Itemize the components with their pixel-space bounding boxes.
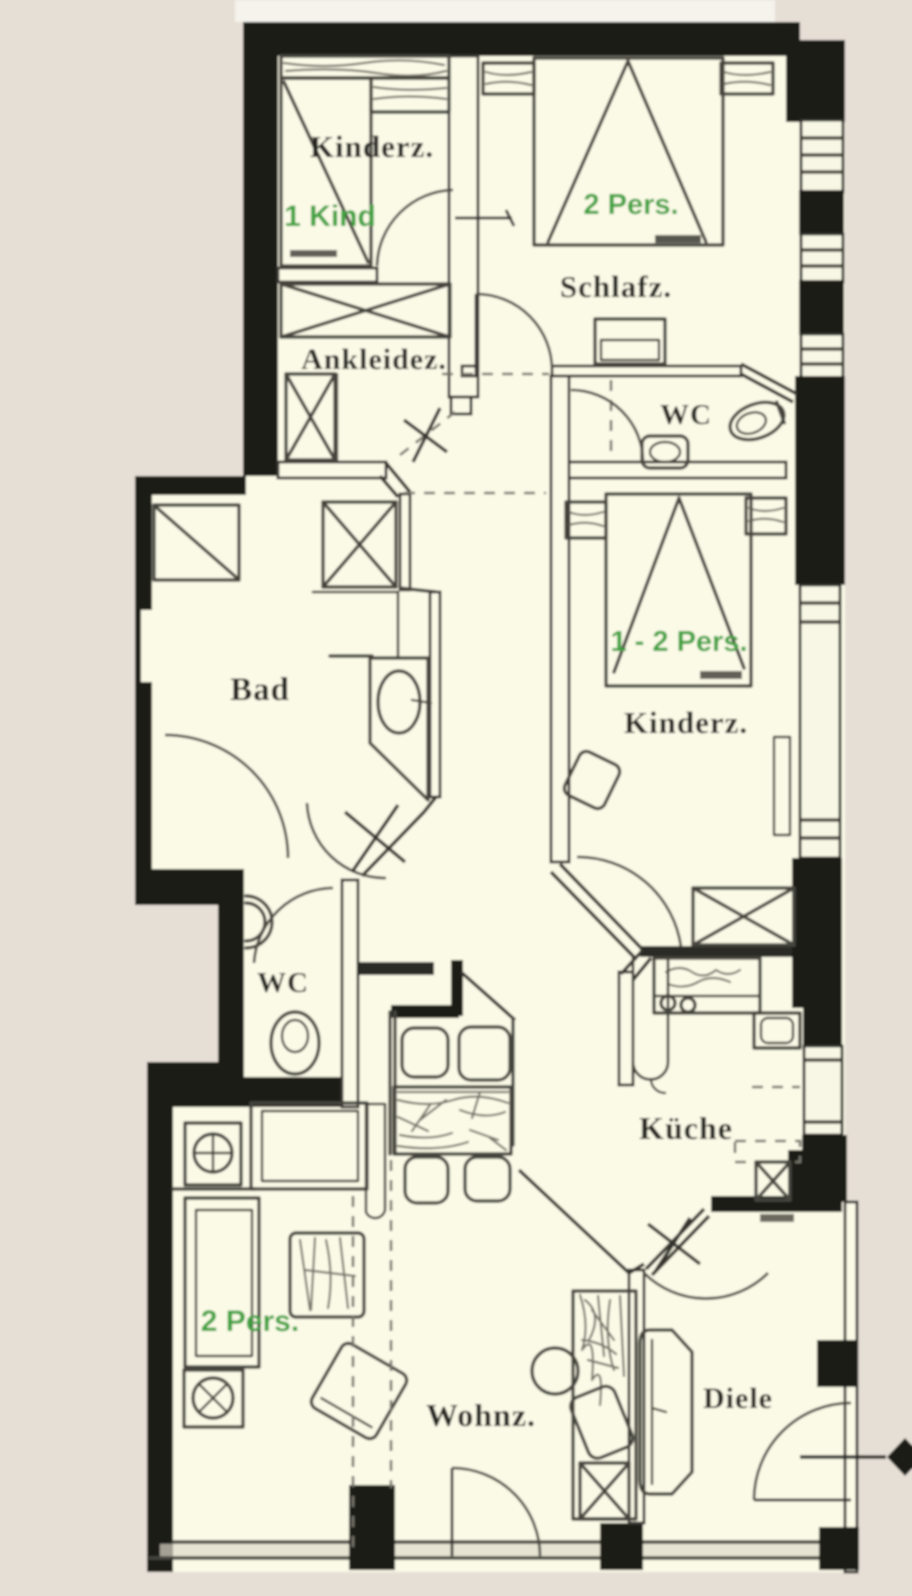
- svg-text:Diele: Diele: [703, 1382, 773, 1415]
- svg-text:Kinderz.: Kinderz.: [624, 705, 748, 740]
- svg-text:Ankleidez.: Ankleidez.: [301, 343, 447, 376]
- svg-text:WC: WC: [660, 399, 712, 431]
- svg-text:Schlafz.: Schlafz.: [560, 269, 672, 304]
- svg-text:WC: WC: [257, 967, 309, 999]
- svg-text:2 Pers.: 2 Pers.: [583, 189, 678, 221]
- svg-text:Wohnz.: Wohnz.: [426, 1397, 536, 1433]
- svg-text:Bad: Bad: [230, 672, 290, 708]
- svg-text:2 Pers.: 2 Pers.: [201, 1305, 299, 1338]
- svg-text:1 Kind: 1 Kind: [284, 200, 376, 233]
- svg-text:Küche: Küche: [639, 1110, 733, 1146]
- svg-text:Kinderz.: Kinderz.: [310, 129, 434, 164]
- svg-text:1 - 2 Pers.: 1 - 2 Pers.: [610, 626, 747, 658]
